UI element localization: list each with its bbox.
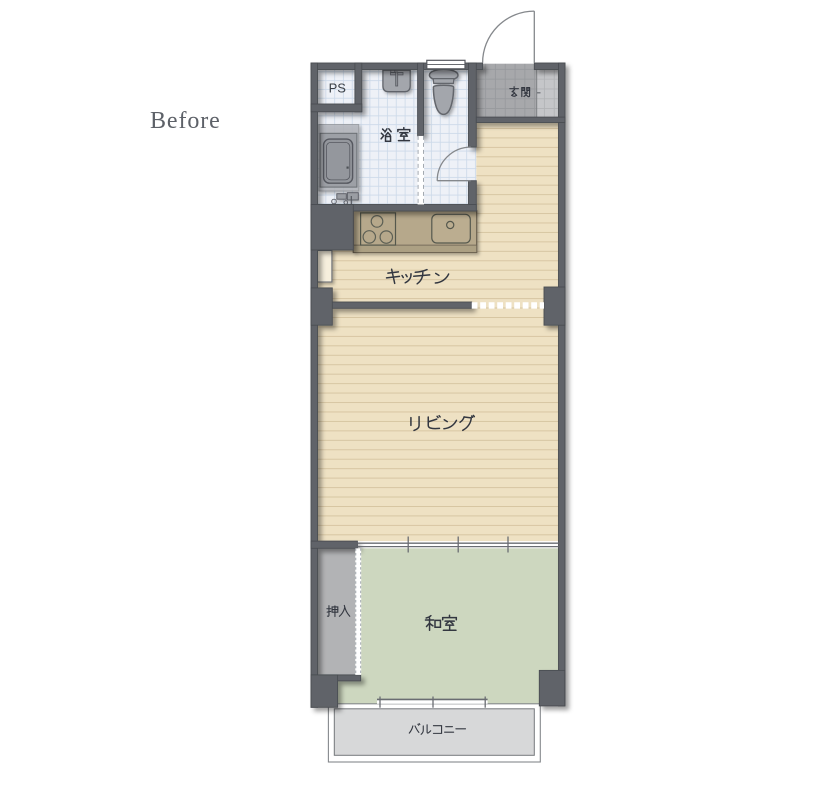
- svg-text:PS: PS: [329, 81, 347, 96]
